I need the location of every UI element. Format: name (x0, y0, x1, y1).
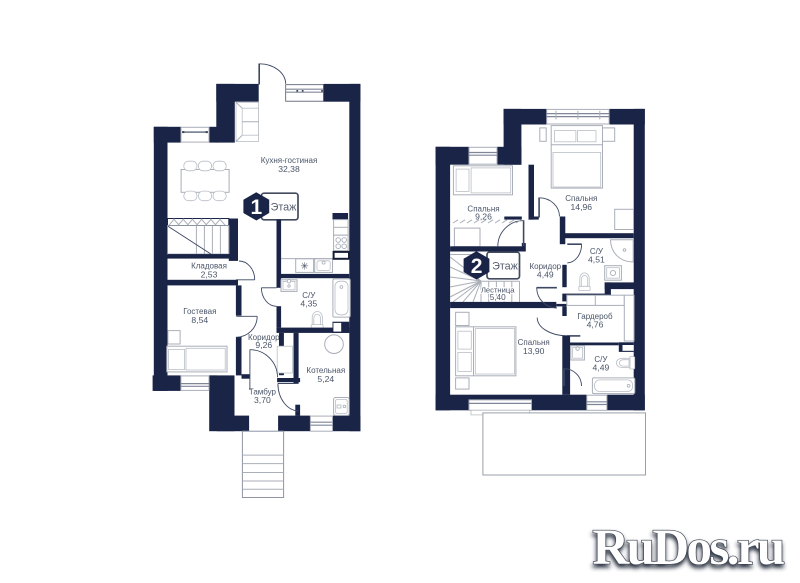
svg-text:4,51: 4,51 (588, 255, 605, 265)
svg-text:2,53: 2,53 (201, 270, 218, 280)
svg-text:4,49: 4,49 (537, 269, 554, 279)
svg-text:4,35: 4,35 (300, 298, 317, 308)
svg-text:13,90: 13,90 (523, 346, 545, 356)
svg-text:8,54: 8,54 (191, 315, 208, 325)
svg-text:1: 1 (251, 196, 263, 219)
svg-text:32,38: 32,38 (278, 164, 300, 174)
svg-text:2: 2 (471, 255, 483, 278)
svg-text:Этаж: Этаж (271, 202, 298, 214)
svg-text:5,24: 5,24 (317, 374, 334, 384)
svg-text:RuDos.ru: RuDos.ru (592, 520, 784, 576)
svg-text:5,40: 5,40 (490, 293, 506, 302)
svg-text:4,76: 4,76 (587, 320, 604, 330)
svg-text:3,70: 3,70 (254, 395, 271, 405)
svg-text:4,49: 4,49 (593, 363, 610, 373)
svg-text:9,26: 9,26 (255, 340, 272, 350)
svg-text:14,96: 14,96 (571, 202, 593, 212)
svg-text:Этаж: Этаж (492, 261, 519, 273)
svg-text:✳: ✳ (300, 262, 308, 273)
